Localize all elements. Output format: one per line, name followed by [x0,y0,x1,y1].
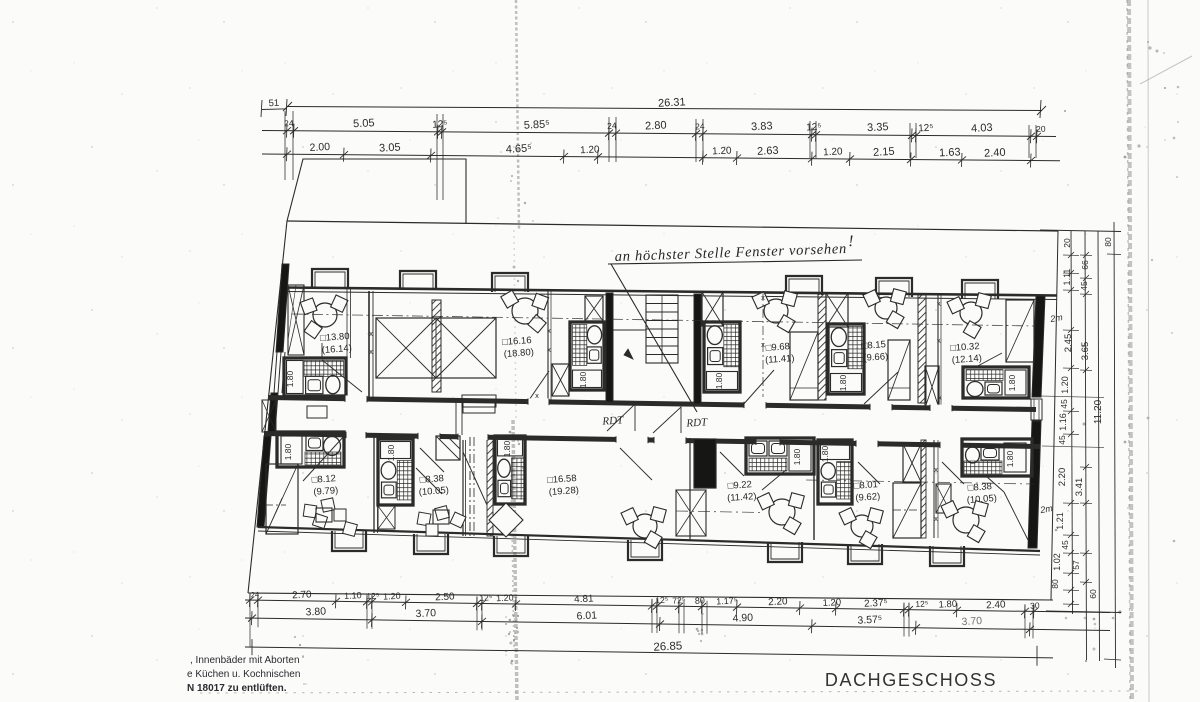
svg-text:x: x [761,293,765,302]
svg-text:, Innenbäder mit Aborten: , Innenbäder mit Aborten [190,655,300,666]
svg-text:3.35: 3.35 [867,121,889,134]
svg-text:2.80: 2.80 [645,119,667,132]
svg-text:□9.68: □9.68 [765,341,790,354]
svg-text:x: x [369,347,373,356]
svg-text:45: 45 [1060,540,1070,550]
svg-text:1.17⁵: 1.17⁵ [716,595,738,606]
svg-text:x: x [547,326,551,335]
svg-text:11.20: 11.20 [1093,399,1104,424]
svg-text:1.20: 1.20 [822,597,841,609]
svg-text:1.80: 1.80 [285,370,295,387]
svg-text:4.65⁵: 4.65⁵ [506,143,533,156]
svg-text:(12.14): (12.14) [951,353,982,366]
svg-text:12⁵: 12⁵ [366,591,379,602]
svg-text:2.37⁵: 2.37⁵ [864,598,888,610]
svg-text:20: 20 [1036,124,1046,134]
svg-text:e Küchen u. Kochnischen: e Küchen u. Kochnischen [187,669,300,680]
svg-text:2.00: 2.00 [309,141,330,154]
svg-text:2.15: 2.15 [873,146,895,159]
svg-text:3.41: 3.41 [1074,478,1085,497]
svg-text:6.01: 6.01 [576,609,597,622]
svg-text:26.85: 26.85 [653,640,682,653]
svg-text:(18.80): (18.80) [503,347,534,360]
svg-text:(9.66): (9.66) [863,351,889,364]
svg-text:□16.16: □16.16 [502,335,532,348]
svg-text:3.70: 3.70 [415,607,436,620]
svg-text:(9.62): (9.62) [855,491,881,504]
svg-text:(16.14): (16.14) [321,343,352,356]
svg-text:1.80: 1.80 [820,445,830,462]
svg-text:12⁵: 12⁵ [479,592,492,603]
svg-text:24: 24 [607,120,617,130]
svg-text:1.20: 1.20 [1060,376,1070,394]
svg-text:1.20: 1.20 [496,592,514,603]
svg-text:12⁵: 12⁵ [806,122,822,134]
svg-text:51: 51 [268,98,279,110]
svg-text:1.63: 1.63 [939,146,961,159]
svg-text:□10.32: □10.32 [950,341,980,354]
svg-text:1.11: 1.11 [1062,269,1072,286]
svg-text:1.80: 1.80 [502,440,512,457]
svg-text:□13.80: □13.80 [320,331,350,344]
svg-text:x: x [934,514,938,523]
svg-text:3.05: 3.05 [379,142,401,155]
svg-text:1.21: 1.21 [1055,512,1065,530]
svg-text:80: 80 [695,595,706,606]
svg-text:12⁵: 12⁵ [432,119,448,131]
svg-text:(19.28): (19.28) [548,485,579,498]
svg-text:3.65: 3.65 [1080,342,1091,361]
svg-text:x: x [547,345,551,354]
svg-text:RDT: RDT [685,416,708,430]
svg-text:N 18017 zu entlüften.: N 18017 zu entlüften. [187,683,287,694]
svg-text:3.80: 3.80 [305,605,326,618]
svg-text:5.05: 5.05 [353,117,375,130]
svg-text:3.83: 3.83 [751,120,773,133]
svg-text:□8.12: □8.12 [311,473,336,486]
svg-text:57: 57 [1071,560,1081,570]
svg-text:45: 45 [1059,399,1069,409]
svg-text:□8.15: □8.15 [861,339,886,352]
svg-text:(11.42): (11.42) [727,491,757,504]
svg-text:4.03: 4.03 [971,122,993,135]
svg-text:DACHGESCHOSS: DACHGESCHOSS [825,670,997,690]
svg-text:2.40: 2.40 [984,147,1006,160]
svg-text:(10.05): (10.05) [418,485,449,498]
svg-text:4.90: 4.90 [732,612,753,625]
svg-text:2.70: 2.70 [292,589,312,601]
svg-text:45: 45 [1079,281,1089,291]
svg-text:1.80: 1.80 [938,599,957,611]
svg-text:20: 20 [1062,238,1072,248]
svg-text:!: ! [848,233,854,250]
svg-text:□9.22: □9.22 [727,479,752,492]
svg-text:□16.58: □16.58 [547,473,577,486]
svg-text:x: x [369,329,373,338]
svg-text:1.80: 1.80 [714,372,724,389]
svg-text:2.40: 2.40 [986,599,1006,611]
svg-text:1.20: 1.20 [383,591,401,602]
svg-text:1.80: 1.80 [578,371,588,388]
svg-text:1.80: 1.80 [386,444,396,461]
svg-text:2.20: 2.20 [768,596,788,608]
svg-text:66: 66 [1080,260,1090,270]
svg-text:1.80: 1.80 [838,374,848,391]
svg-text:x: x [934,465,938,474]
svg-text:1.02: 1.02 [1052,553,1062,571]
svg-text:3.70: 3.70 [961,615,982,628]
svg-text:1.20: 1.20 [712,145,732,157]
svg-text:1.80: 1.80 [1005,450,1015,467]
svg-text:2.20: 2.20 [1057,468,1068,487]
svg-text:1.20: 1.20 [580,144,600,156]
svg-text:(9.79): (9.79) [313,485,339,498]
svg-text:1.80: 1.80 [283,443,293,460]
svg-text:4.81: 4.81 [574,593,594,605]
svg-text:2.45: 2.45 [1063,334,1074,353]
svg-text:1.10: 1.10 [344,590,362,601]
svg-text:80: 80 [1050,579,1060,589]
svg-text:12⁵: 12⁵ [915,598,928,609]
svg-text:5.85⁵: 5.85⁵ [524,118,551,131]
svg-text:1.16: 1.16 [1058,413,1068,431]
svg-text:80: 80 [1103,237,1113,247]
svg-text:26.31: 26.31 [658,96,686,109]
svg-text:3.57⁵: 3.57⁵ [857,613,882,626]
svg-text:1.80: 1.80 [1007,374,1017,391]
svg-text:12⁵: 12⁵ [918,123,934,135]
svg-text:1.80: 1.80 [792,448,802,465]
svg-text:x: x [761,340,765,349]
svg-text:30: 30 [1030,600,1040,610]
svg-text:2.63: 2.63 [757,145,779,158]
svg-text:2.50: 2.50 [435,591,455,603]
svg-text:1.20: 1.20 [823,146,843,158]
svg-text:60: 60 [1088,589,1098,599]
svg-text:45: 45 [1057,435,1067,445]
